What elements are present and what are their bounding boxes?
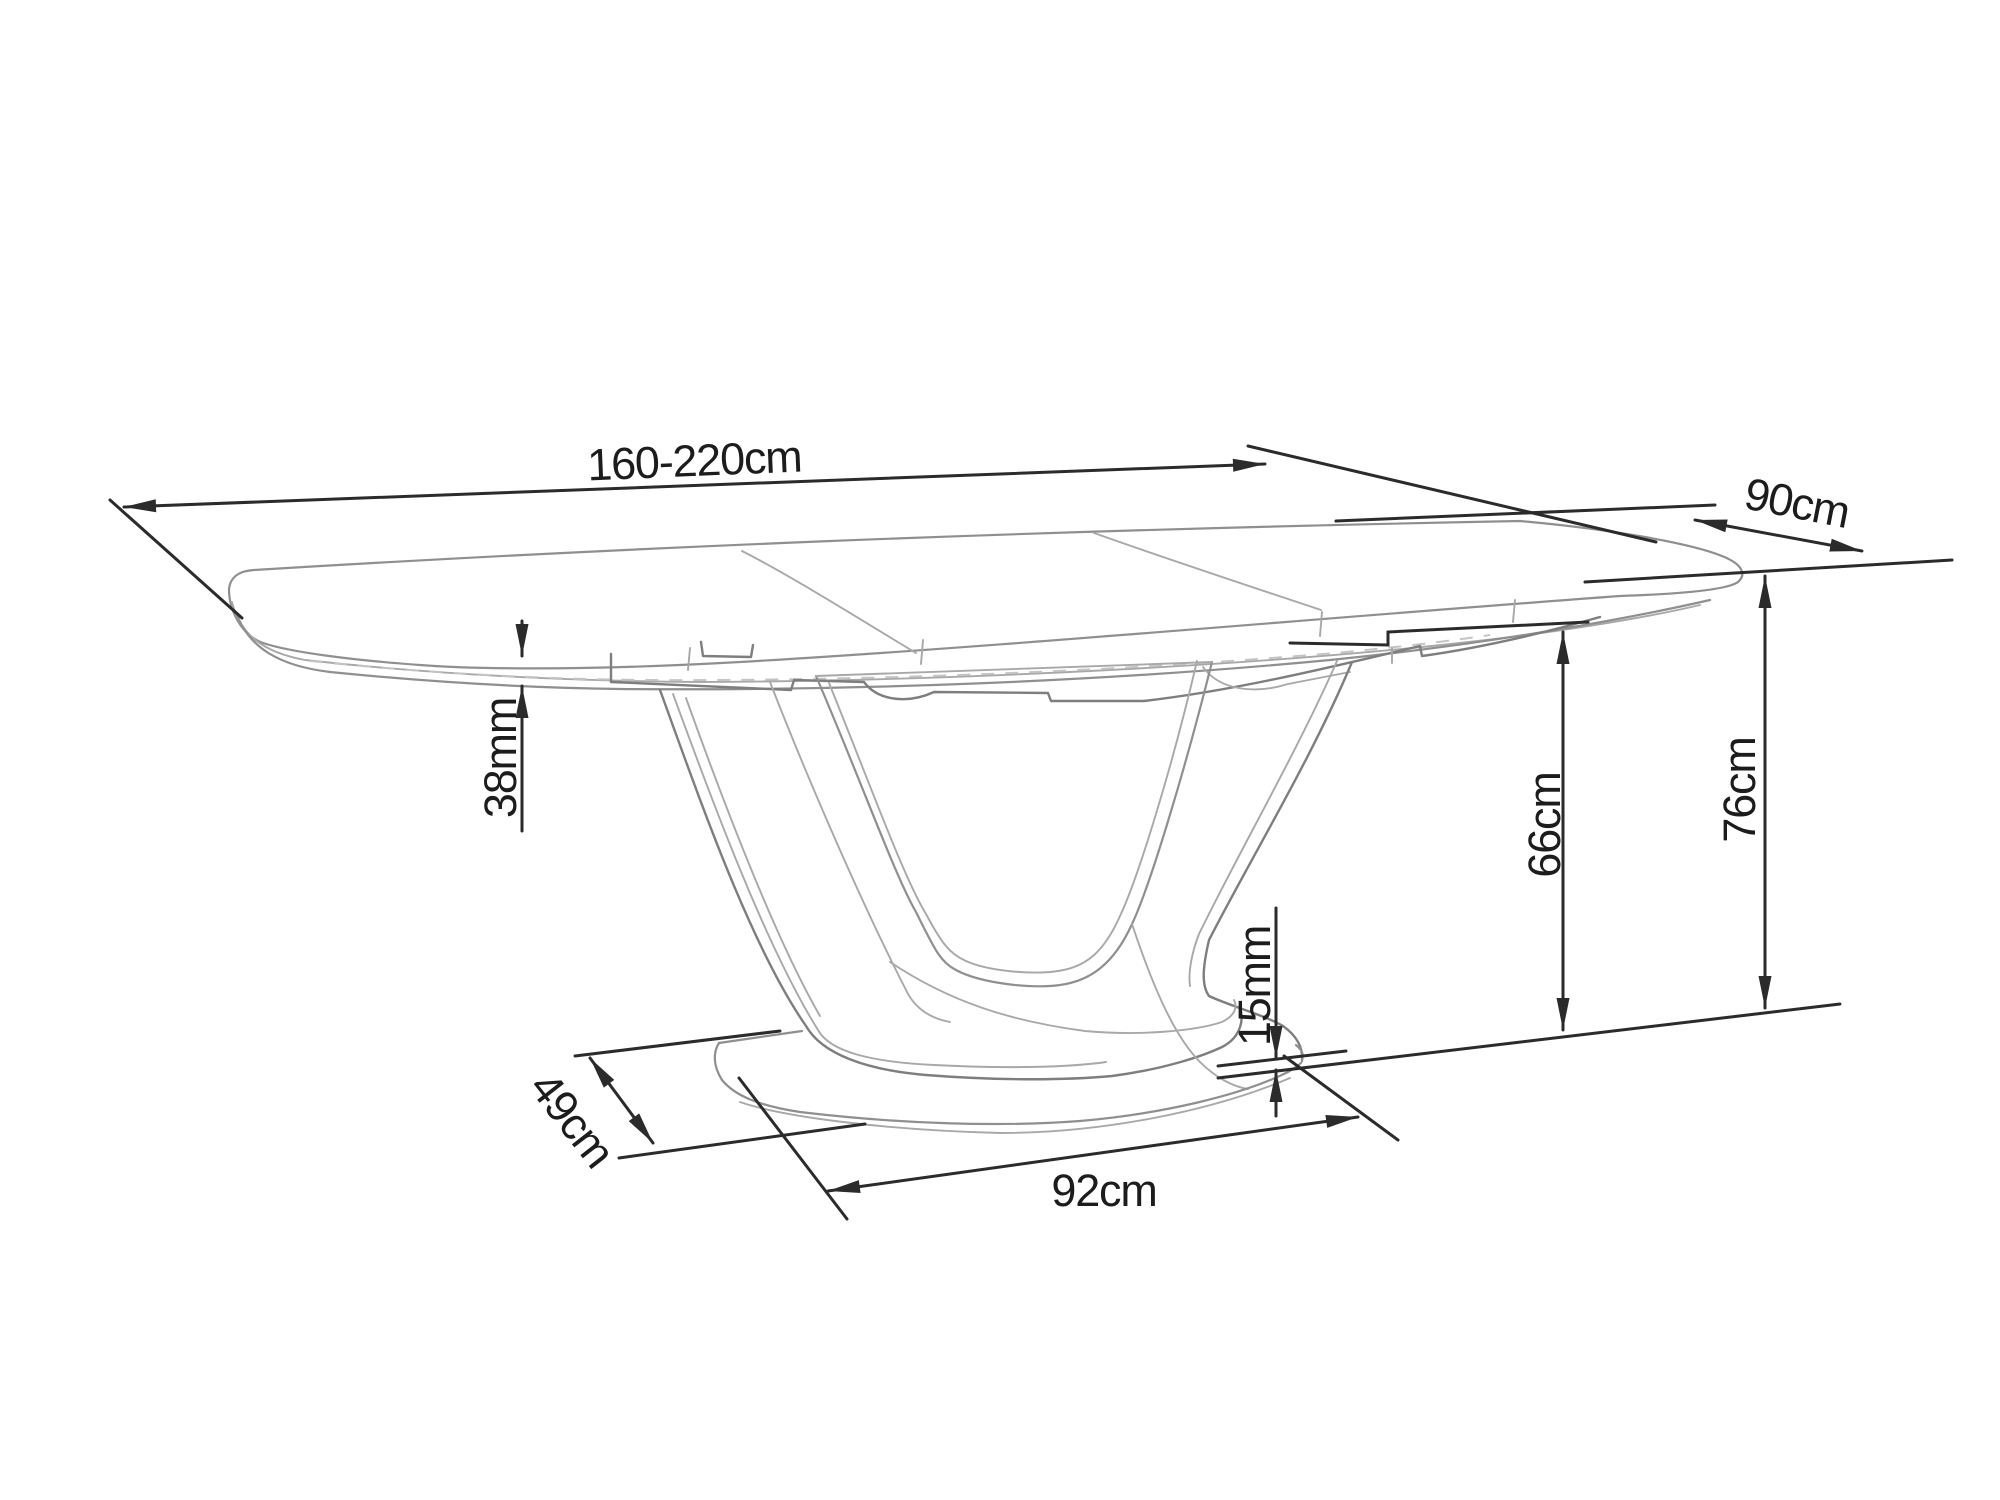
svg-text:92cm: 92cm <box>1051 1165 1156 1216</box>
svg-text:160-220cm: 160-220cm <box>586 431 802 491</box>
svg-text:76cm: 76cm <box>1714 737 1765 842</box>
svg-text:66cm: 66cm <box>1519 772 1570 877</box>
svg-text:38mm: 38mm <box>475 698 526 818</box>
svg-text:15mm: 15mm <box>1229 926 1280 1046</box>
